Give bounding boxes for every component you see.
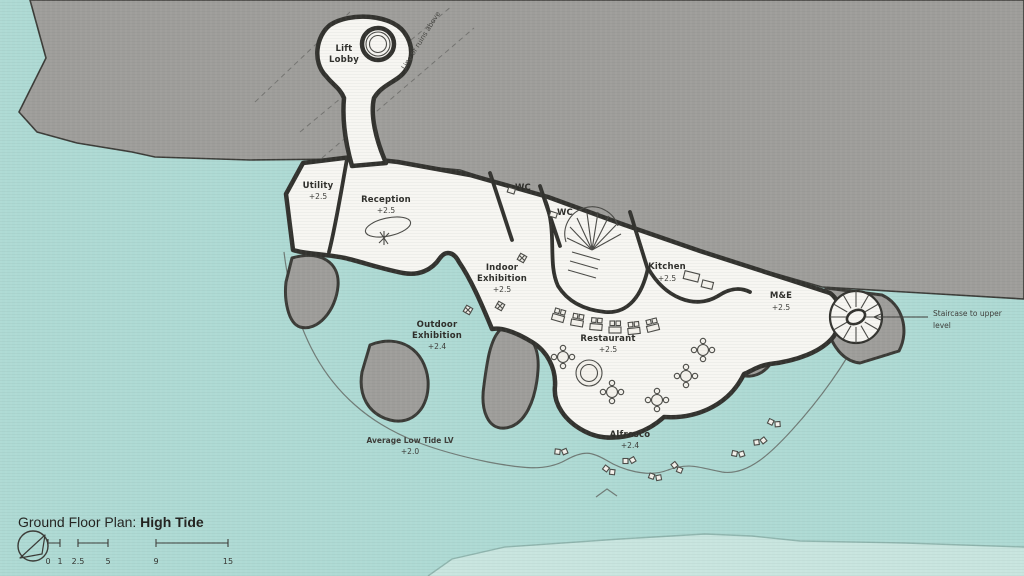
svg-text:Exhibition: Exhibition <box>477 274 527 284</box>
scale-tick: 1 <box>57 557 62 566</box>
table-icon <box>627 321 640 334</box>
svg-text:+2.5: +2.5 <box>377 206 395 215</box>
plan-title: Ground Floor Plan: High Tide <box>18 514 204 530</box>
scale-tick: 15 <box>223 557 233 566</box>
svg-text:+2.5: +2.5 <box>309 192 327 201</box>
svg-text:+2.5: +2.5 <box>772 303 790 312</box>
svg-text:+2.4: +2.4 <box>621 441 639 450</box>
scale-tick: 2.5 <box>72 557 85 566</box>
plan-title-prefix: Ground Floor Plan: <box>18 514 140 530</box>
room-label-wc1: WC <box>515 183 531 193</box>
terrace-blob <box>361 341 428 421</box>
svg-text:M&E: M&E <box>770 291 792 301</box>
svg-text:Alfresco: Alfresco <box>610 430 651 440</box>
svg-text:Average Low Tide LV: Average Low Tide LV <box>366 436 453 445</box>
feature-column <box>576 360 602 386</box>
scale-tick: 5 <box>105 557 110 566</box>
svg-text:Lobby: Lobby <box>329 55 359 65</box>
svg-text:Lift: Lift <box>336 44 353 54</box>
svg-text:Kitchen: Kitchen <box>648 262 686 272</box>
svg-text:Reception: Reception <box>361 195 411 205</box>
staircase-note: level <box>933 321 951 330</box>
svg-text:+2.5: +2.5 <box>493 285 511 294</box>
scale-tick: 9 <box>153 557 158 566</box>
svg-text:Outdoor: Outdoor <box>417 320 458 330</box>
table-icon <box>590 318 603 331</box>
table-icon <box>609 321 621 333</box>
svg-text:+2.5: +2.5 <box>658 274 676 283</box>
svg-text:+2.5: +2.5 <box>599 345 617 354</box>
lift-shaft <box>362 28 394 60</box>
floor-plan-sheet: Staircase to upper level Line of ruins a… <box>0 0 1024 576</box>
svg-text:+2.0: +2.0 <box>401 447 419 456</box>
svg-text:+2.4: +2.4 <box>428 342 446 351</box>
svg-text:Utility: Utility <box>303 181 334 191</box>
plan-title-highlight: High Tide <box>140 514 204 530</box>
svg-text:Restaurant: Restaurant <box>580 334 635 344</box>
svg-text:Indoor: Indoor <box>486 263 519 273</box>
svg-text:Exhibition: Exhibition <box>412 331 462 341</box>
room-label-wc2: WC <box>557 208 573 218</box>
staircase-note: Staircase to upper <box>933 309 1003 318</box>
scale-tick: 0 <box>45 557 50 566</box>
